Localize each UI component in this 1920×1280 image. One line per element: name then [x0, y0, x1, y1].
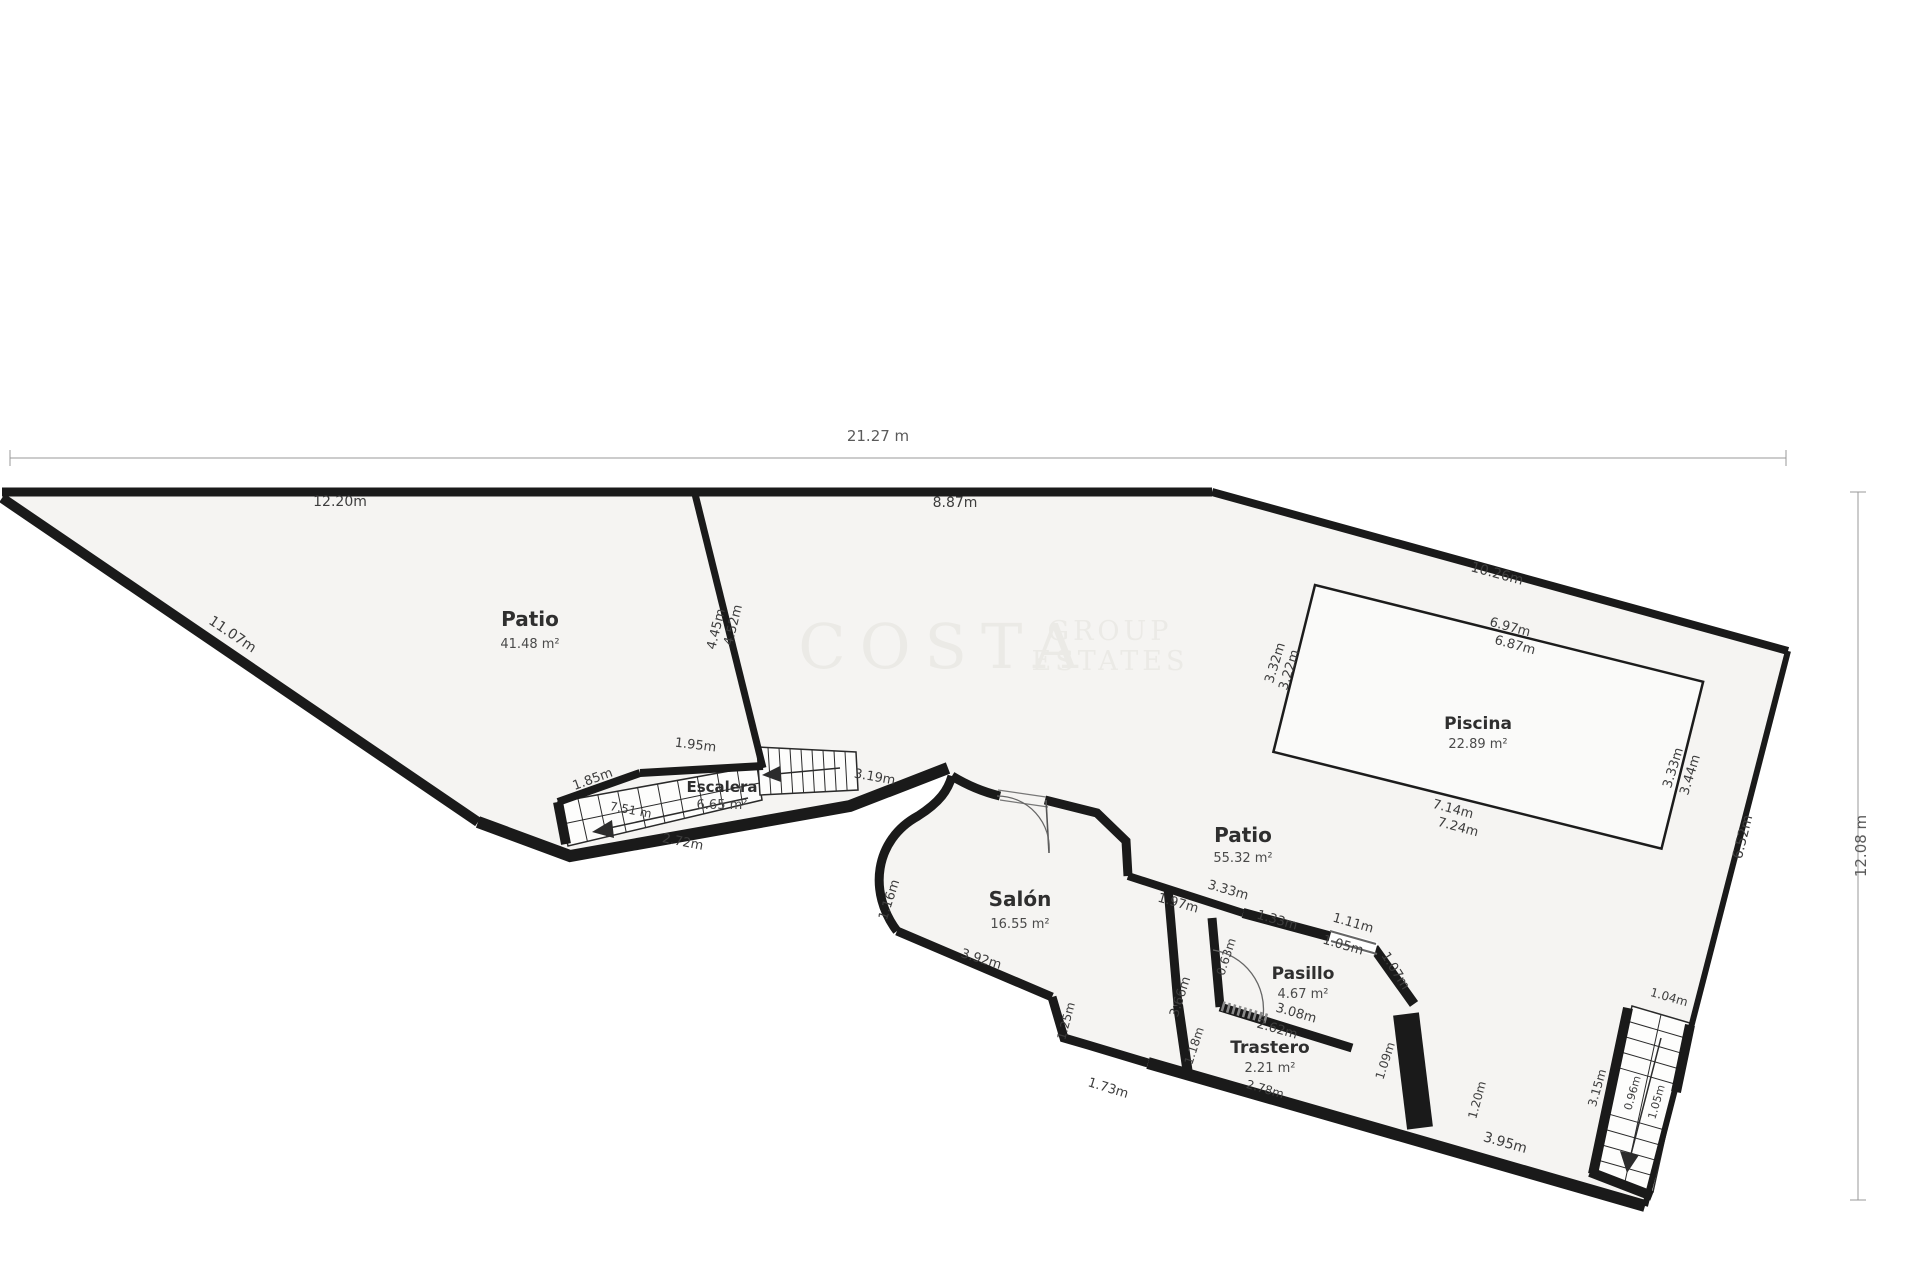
room-pasillo-name: Pasillo — [1272, 964, 1335, 984]
watermark-text-2: GROUP — [1048, 616, 1173, 647]
floorplan-canvas: COSTAGROUPESTATES 21.27 m12.08 m12.20m8.… — [0, 0, 1920, 1280]
room-patio-pool-area: 55.32 m² — [1213, 851, 1272, 866]
room-trastero-area: 2.21 m² — [1245, 1061, 1296, 1076]
label-top-wall-left: 12.20m — [313, 494, 367, 510]
room-pasillo-area: 4.67 m² — [1278, 987, 1329, 1002]
watermark-text-3: ESTATES — [1032, 646, 1189, 677]
room-trastero-name: Trastero — [1230, 1038, 1309, 1058]
room-salon-name: Salón — [989, 887, 1052, 911]
label-top-wall-right: 8.87m — [933, 495, 978, 511]
wall-trastero-east — [1406, 1014, 1420, 1128]
label-dim-top: 21.27 m — [847, 427, 909, 445]
floorplan-page: COSTAGROUPESTATES 21.27 m12.08 m12.20m8.… — [0, 0, 1920, 1280]
room-patio-pool-name: Patio — [1214, 823, 1272, 847]
room-piscina-name: Piscina — [1444, 714, 1512, 734]
label-dim-right: 12.08 m — [1852, 815, 1870, 877]
dim-line-top — [10, 450, 1786, 466]
room-salon-area: 16.55 m² — [990, 917, 1049, 932]
room-patio-main-name: Patio — [501, 607, 559, 631]
watermark: COSTAGROUPESTATES — [798, 610, 1188, 683]
room-escalera-name: Escalera — [686, 778, 757, 796]
plot-floor — [2, 492, 1788, 1206]
label-salon-notch-bot: 1.73m — [1086, 1075, 1130, 1102]
room-piscina-area: 22.89 m² — [1448, 737, 1507, 752]
room-escalera-area: 6.65 m² — [697, 798, 748, 813]
room-patio-main-area: 41.48 m² — [500, 637, 559, 652]
